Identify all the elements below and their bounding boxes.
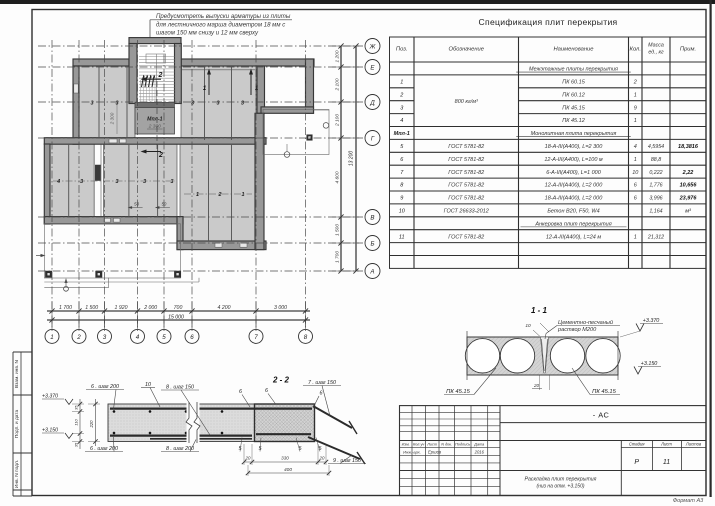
svg-text:6: 6 [239, 389, 242, 395]
svg-text:1: 1 [50, 334, 53, 341]
svg-text:ед., кг: ед., кг [648, 50, 664, 56]
svg-text:3: 3 [191, 101, 194, 107]
svg-text:2 300: 2 300 [148, 124, 161, 130]
svg-text:1: 1 [196, 192, 199, 198]
svg-text:3: 3 [171, 179, 174, 185]
svg-text:220: 220 [89, 420, 94, 429]
svg-text:4,5954: 4,5954 [648, 144, 664, 150]
svg-text:2: 2 [399, 92, 403, 98]
svg-text:ПК 45.15: ПК 45.15 [446, 389, 471, 395]
svg-text:Лист: Лист [426, 442, 437, 446]
svg-text:11: 11 [399, 234, 405, 240]
svg-text:Инж.-арх.: Инж.-арх. [403, 449, 421, 454]
svg-text:5: 5 [162, 334, 166, 341]
svg-text:ПК 60.15: ПК 60.15 [562, 79, 585, 85]
svg-text:3 000: 3 000 [274, 305, 287, 311]
svg-text:ГОСТ 5781-82: ГОСТ 5781-82 [448, 170, 484, 176]
svg-text:6: 6 [320, 391, 323, 397]
svg-text:50: 50 [134, 202, 139, 207]
svg-text:20: 20 [533, 383, 540, 388]
svg-text:Мпл-1: Мпл-1 [394, 131, 410, 137]
svg-text:3,996: 3,996 [649, 196, 662, 202]
svg-text:Анкеровка плит перекрытия: Анкеровка плит перекрытия [534, 221, 611, 227]
svg-text:+3.370: +3.370 [42, 394, 58, 400]
svg-text:Ершов: Ершов [428, 449, 442, 454]
svg-text:+3.150: +3.150 [641, 361, 658, 367]
svg-text:9: 9 [634, 105, 637, 111]
svg-text:2 000: 2 000 [143, 305, 157, 311]
svg-text:1,776: 1,776 [649, 183, 662, 189]
svg-text:ГОСТ 5781-82: ГОСТ 5781-82 [448, 234, 484, 240]
svg-text:10: 10 [632, 170, 639, 176]
svg-text:В: В [370, 214, 374, 221]
svg-text:Кол.: Кол. [630, 47, 641, 53]
svg-text:21,312: 21,312 [647, 234, 664, 240]
svg-text:+3.370: +3.370 [643, 318, 660, 324]
svg-text:Изм.: Изм. [402, 442, 410, 446]
svg-text:10: 10 [525, 323, 531, 329]
svg-text:2 - 2: 2 - 2 [272, 376, 290, 385]
svg-text:ГОСТ 5781-82: ГОСТ 5781-82 [448, 196, 484, 202]
svg-text:20: 20 [245, 456, 251, 461]
svg-text:Д: Д [369, 99, 375, 106]
svg-text:18-А-III(А400), L=2 000: 18-А-III(А400), L=2 000 [545, 196, 604, 202]
svg-text:Листов: Листов [685, 442, 702, 447]
svg-text:Мпл-1: Мпл-1 [147, 117, 162, 123]
svg-text:2 300: 2 300 [110, 112, 115, 125]
svg-text:12-А-III(А400), L=2 000: 12-А-III(А400), L=2 000 [545, 183, 604, 189]
svg-text:Дата: Дата [473, 442, 484, 446]
svg-text:Р: Р [634, 459, 639, 466]
svg-text:3: 3 [116, 179, 119, 185]
svg-text:88,8: 88,8 [651, 157, 661, 163]
svg-text:12-А-III(А400), L=24 м: 12-А-III(А400), L=24 м [546, 234, 602, 240]
svg-text:2: 2 [218, 192, 222, 198]
svg-text:2 100: 2 100 [335, 78, 341, 91]
svg-text:2: 2 [158, 152, 163, 159]
svg-text:Б: Б [370, 240, 374, 247]
svg-text:1: 1 [634, 234, 637, 240]
svg-text:Монолитная плита перекрытия: Монолитная плита перекрытия [531, 131, 617, 137]
svg-text:2,22: 2,22 [682, 170, 694, 176]
svg-text:9: 9 [400, 196, 403, 202]
svg-text:7: 7 [254, 334, 258, 341]
svg-text:1: 1 [400, 79, 403, 85]
svg-text:110: 110 [74, 419, 79, 426]
svg-text:8 . шаг 200: 8 . шаг 200 [166, 446, 194, 452]
svg-text:8 . шаг 150: 8 . шаг 150 [166, 385, 194, 391]
svg-text:ПК 45.15: ПК 45.15 [592, 389, 617, 395]
svg-text:330: 330 [281, 456, 289, 461]
svg-text:1 - 1: 1 - 1 [531, 306, 548, 315]
svg-text:2: 2 [158, 72, 163, 79]
svg-text:1,164: 1,164 [649, 208, 662, 214]
svg-text:А: А [369, 268, 374, 275]
svg-text:1: 1 [634, 118, 637, 124]
svg-text:Межэтажные плиты перекрытия: Межэтажные плиты перекрытия [529, 67, 618, 73]
svg-text:3: 3 [116, 101, 119, 107]
svg-text:Поз.: Поз. [396, 47, 408, 53]
svg-text:3: 3 [241, 101, 244, 107]
svg-text:1 700: 1 700 [335, 251, 341, 263]
svg-text:Раскладка плит перекрытия: Раскладка плит перекрытия [525, 477, 597, 483]
svg-text:Масса: Масса [648, 43, 664, 49]
svg-text:ГОСТ 5781-82: ГОСТ 5781-82 [448, 183, 484, 189]
svg-text:4: 4 [56, 179, 60, 185]
svg-text:3: 3 [143, 179, 146, 185]
svg-text:Лист: Лист [660, 442, 672, 447]
svg-text:10: 10 [399, 208, 406, 214]
svg-text:м³: м³ [685, 208, 691, 214]
svg-text:8: 8 [304, 334, 308, 341]
svg-text:1: 1 [634, 157, 637, 163]
svg-text:Цементно-песчаный: Цементно-песчаный [558, 319, 613, 326]
svg-text:2 100: 2 100 [335, 114, 341, 127]
svg-text:1 200: 1 200 [335, 50, 341, 62]
svg-text:Прим.: Прим. [680, 47, 696, 53]
svg-text:2016: 2016 [474, 449, 485, 454]
svg-text:1 500: 1 500 [85, 305, 98, 311]
svg-text:400: 400 [284, 467, 292, 473]
svg-text:(низ на отм. +3.150): (низ на отм. +3.150) [536, 484, 584, 490]
svg-text:ПК 45.15: ПК 45.15 [562, 105, 585, 111]
svg-text:ГОСТ 5781-82: ГОСТ 5781-82 [448, 157, 484, 163]
svg-text:10: 10 [145, 382, 151, 388]
svg-text:3: 3 [103, 334, 107, 341]
svg-text:Подп. и дата: Подп. и дата [14, 410, 20, 439]
svg-text:12-А-III(А400), L=100 м: 12-А-III(А400), L=100 м [544, 157, 603, 163]
svg-text:1: 1 [242, 192, 245, 198]
svg-text:для лестничного марша диаметро: для лестничного марша диаметром 18 мм с [156, 21, 285, 28]
svg-text:N док.: N док. [441, 442, 452, 446]
svg-text:6: 6 [265, 388, 268, 394]
svg-text:Обозначение: Обозначение [448, 47, 484, 53]
svg-text:1: 1 [634, 92, 637, 98]
svg-text:0,222: 0,222 [649, 170, 662, 176]
svg-text:6-А-III(А400), L=1 000: 6-А-III(А400), L=1 000 [546, 170, 602, 176]
svg-text:18,3816: 18,3816 [678, 144, 699, 150]
svg-text:- АС: - АС [593, 411, 610, 420]
svg-text:20: 20 [319, 456, 325, 461]
svg-text:7 . шаг 150: 7 . шаг 150 [308, 380, 336, 386]
svg-text:1 500: 1 500 [335, 224, 341, 236]
svg-text:Наименование: Наименование [553, 47, 594, 53]
svg-text:4: 4 [136, 334, 140, 341]
svg-text:Спецификация плит перекрытия: Спецификация плит перекрытия [478, 17, 617, 27]
svg-text:4 200: 4 200 [218, 305, 231, 311]
svg-text:шагом 150 мм снизу и 12 мм све: шагом 150 мм снизу и 12 мм сверху [156, 30, 259, 37]
svg-text:ПК 45.12: ПК 45.12 [562, 118, 585, 124]
svg-text:4: 4 [634, 144, 637, 150]
svg-text:1 700: 1 700 [59, 305, 72, 311]
svg-text:2: 2 [633, 79, 637, 85]
svg-text:4: 4 [400, 118, 403, 124]
svg-text:11: 11 [663, 459, 670, 466]
svg-text:3: 3 [91, 101, 94, 107]
svg-text:6 . шаг 200: 6 . шаг 200 [91, 384, 119, 390]
svg-text:3: 3 [217, 101, 220, 107]
svg-text:Кол.уч: Кол.уч [413, 442, 424, 446]
svg-text:3: 3 [80, 179, 83, 185]
svg-text:ПК 60.12: ПК 60.12 [562, 92, 585, 98]
svg-text:Взам. инв. N: Взам. инв. N [14, 359, 20, 388]
svg-text:800 кг/м³: 800 кг/м³ [455, 99, 478, 105]
svg-text:1 920: 1 920 [115, 305, 128, 311]
svg-text:23,976: 23,976 [679, 196, 698, 202]
svg-text:Бетон В20, F50, W4: Бетон В20, F50, W4 [547, 208, 599, 214]
svg-text:18-А-III(А400), L=2 300: 18-А-III(А400), L=2 300 [545, 144, 604, 150]
svg-text:Предусмотреть выпуски арматуры: Предусмотреть выпуски арматуры из плиты [156, 13, 291, 20]
svg-text:4 600: 4 600 [335, 171, 341, 183]
svg-text:700: 700 [174, 305, 183, 311]
svg-text:15 000: 15 000 [168, 315, 184, 321]
svg-text:Ж: Ж [369, 43, 376, 50]
svg-text:Стадия: Стадия [629, 442, 645, 447]
svg-text:ГОСТ 26633-2012: ГОСТ 26633-2012 [444, 208, 489, 214]
svg-text:ГОСТ 5781-82: ГОСТ 5781-82 [448, 144, 484, 150]
svg-text:13 200: 13 200 [349, 151, 355, 167]
svg-text:2: 2 [76, 334, 81, 341]
svg-text:Инв. N подл.: Инв. N подл. [14, 460, 20, 488]
svg-text:6: 6 [190, 334, 194, 341]
svg-text:+3.150: +3.150 [42, 428, 58, 434]
svg-text:35: 35 [74, 405, 79, 410]
svg-text:Формат А3: Формат А3 [673, 498, 704, 504]
svg-text:35: 35 [74, 442, 79, 447]
svg-text:10,656: 10,656 [680, 183, 698, 189]
svg-text:Подпись: Подпись [455, 442, 470, 446]
svg-text:раствор М200: раствор М200 [557, 327, 597, 333]
